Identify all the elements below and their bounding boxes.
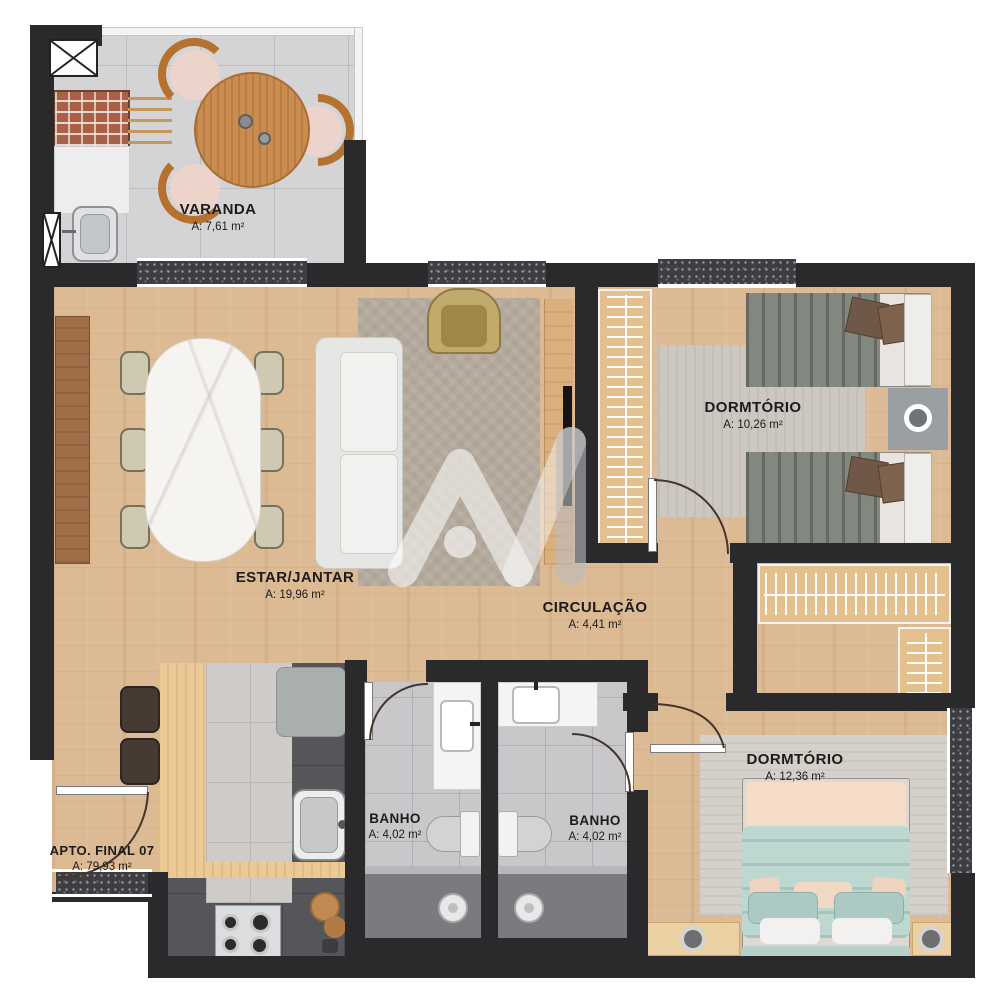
window-frame [137, 284, 307, 287]
headboard [904, 294, 932, 386]
skewer [128, 108, 172, 111]
room-area: A: 12,36 m² [695, 770, 895, 785]
window-frame [658, 284, 796, 288]
wall [307, 263, 428, 287]
room-area: A: 4,02 m² [325, 828, 465, 843]
bed-sheet-peach [746, 782, 906, 830]
apartment-label: APTO. FINAL 07 A: 79,93 m² [22, 843, 182, 875]
cup [258, 132, 271, 145]
headboard [904, 453, 932, 545]
room-name: VARANDA [128, 200, 308, 220]
closet-wardrobe-top [758, 564, 951, 624]
lamp [918, 926, 944, 952]
stove-burner [250, 912, 271, 933]
room-label-banho-2: BANHO A: 4,02 m² [525, 812, 665, 844]
window-frame [137, 258, 307, 261]
shaft-x-icon [42, 212, 61, 268]
wall [426, 660, 648, 682]
faucet [470, 722, 480, 726]
balcony-sink-basin [80, 214, 110, 254]
wardrobe-rail [625, 295, 627, 549]
room-label-varanda: VARANDA A: 7,61 m² [128, 200, 308, 234]
wall [951, 263, 975, 710]
bath1-basin [440, 700, 474, 752]
fridge [276, 667, 346, 737]
room-label-banho-1: BANHO A: 4,02 m² [325, 810, 465, 842]
room-area: A: 4,41 m² [505, 618, 685, 633]
window-frame [428, 284, 546, 287]
wall [52, 263, 137, 287]
kitchen-wood-counter [158, 862, 345, 878]
wall [796, 263, 975, 287]
threshold-edge [52, 894, 152, 897]
room-area: A: 4,02 m² [525, 830, 665, 845]
wall [148, 956, 975, 978]
am-logo-watermark [378, 412, 618, 597]
stove-burner [222, 914, 239, 931]
window-frame [947, 708, 950, 873]
sideboard [55, 316, 90, 564]
cup [238, 114, 253, 129]
room-name: CIRCULAÇÃO [505, 598, 685, 618]
room-label-dormitorio-1: DORMTÓRIO A: 10,26 m² [653, 398, 853, 432]
lamp [680, 926, 706, 952]
room-label-circulacao: CIRCULAÇÃO A: 4,41 m² [505, 598, 685, 632]
wall [30, 25, 54, 760]
balcony-glass-rail [354, 27, 363, 158]
dining-table [145, 338, 261, 562]
wardrobe-rail [764, 594, 945, 596]
balcony-table [194, 72, 310, 188]
wall [546, 263, 658, 287]
lamp [904, 404, 932, 432]
shower-threshold [498, 866, 627, 874]
room-label-dormitorio-2: DORMTÓRIO A: 12,36 m² [695, 750, 895, 784]
wardrobe-rail [925, 633, 927, 695]
window [137, 261, 307, 285]
window [658, 259, 796, 285]
skewer [128, 141, 172, 144]
apartment-area: A: 79,93 m² [22, 860, 182, 875]
pillow [760, 918, 820, 944]
floor-plan: VARANDA A: 7,61 m² ESTAR/JANTAR A: 19,96… [0, 0, 1000, 1008]
wall [733, 557, 757, 703]
faucet [62, 230, 76, 233]
armchair-seat [441, 305, 487, 347]
stool [120, 686, 160, 733]
room-name: ESTAR/JANTAR [195, 568, 395, 588]
skewer [128, 119, 172, 122]
window [428, 261, 546, 285]
shower-threshold [365, 866, 481, 874]
stove-burner [222, 936, 239, 953]
room-name: BANHO [525, 812, 665, 830]
door-arc-bath1 [366, 680, 430, 744]
shower-head [524, 903, 534, 913]
window-frame [972, 708, 975, 873]
room-area: A: 10,26 m² [653, 418, 853, 433]
skewer [128, 97, 172, 100]
room-label-estar-jantar: ESTAR/JANTAR A: 19,96 m² [195, 568, 395, 602]
pillow [832, 918, 892, 944]
apartment-name: APTO. FINAL 07 [22, 843, 182, 860]
bath2-toilet-tank [498, 811, 518, 857]
room-area: A: 7,61 m² [128, 220, 308, 235]
wall [481, 682, 498, 940]
closet-wardrobe-side [898, 627, 951, 701]
window-frame [428, 258, 546, 261]
room-name: DORMTÓRIO [653, 398, 853, 418]
room-area: A: 19,96 m² [195, 588, 395, 603]
door-arc-bath2 [570, 730, 632, 794]
shaft-x-icon [49, 39, 98, 77]
wall [148, 872, 168, 962]
barbecue-grill [53, 90, 130, 148]
stove-burner [250, 936, 269, 955]
room-name: BANHO [325, 810, 465, 828]
balcony-glass-rail [94, 27, 363, 36]
skewer [128, 130, 172, 133]
room-name: DORMTÓRIO [695, 750, 895, 770]
door-arc-bedroom1 [648, 474, 734, 560]
outside-area [0, 902, 148, 1008]
balcony-counter [54, 146, 130, 214]
bath2-basin [512, 686, 560, 724]
wall [726, 693, 958, 711]
cutting-board [324, 916, 346, 938]
wall [730, 543, 975, 563]
shower-head [448, 903, 458, 913]
kettle [322, 939, 338, 953]
wall [627, 660, 648, 732]
door-arc-bedroom2 [648, 698, 730, 754]
stool [120, 738, 160, 785]
